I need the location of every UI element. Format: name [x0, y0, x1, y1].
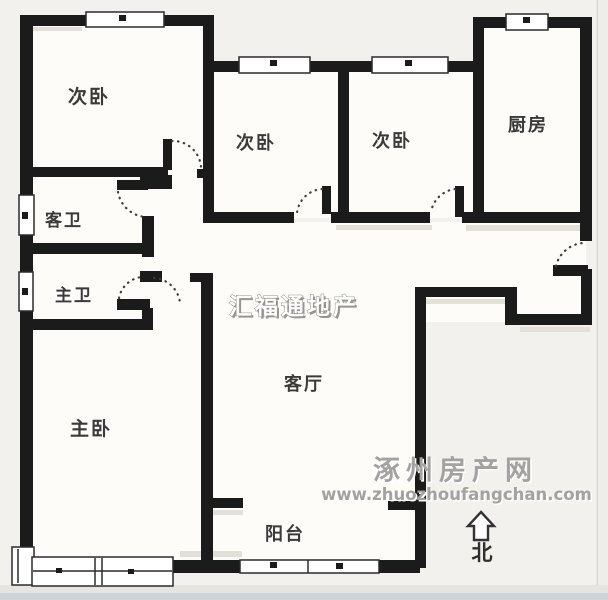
room-label-bedroom-right: 次卧 — [372, 130, 412, 152]
room-label-kitchen: 厨房 — [508, 114, 548, 136]
window-master-bottom — [32, 557, 173, 586]
floorplan-image: 次卧 次卧 次卧 厨房 客卫 主卫 主卧 客厅 阳台 汇福通地产 汇福通地产 涿… — [0, 0, 608, 600]
floorplan-svg: 次卧 次卧 次卧 厨房 客卫 主卫 主卧 客厅 阳台 汇福通地产 汇福通地产 涿… — [0, 0, 608, 600]
room-label-guest-bath: 客卫 — [44, 210, 83, 231]
window-bedroom2-top — [239, 57, 310, 73]
watermark-agency: 汇福通地产 — [229, 293, 359, 320]
room-label-bedroom-middle: 次卧 — [236, 132, 276, 154]
window-master-corner-box — [12, 547, 34, 585]
window-master-bath-left — [19, 272, 33, 311]
watermark-site: 涿州房产网 — [373, 456, 538, 487]
room-label-master-bed: 主卧 — [70, 418, 112, 440]
room-label-master-bath: 主卫 — [55, 285, 93, 306]
window-bedroom3-top — [372, 57, 448, 73]
north-label: 北 — [472, 541, 493, 565]
window-bedroom1-top — [86, 12, 164, 27]
window-guest-bath-left — [19, 195, 34, 235]
window-kitchen-top — [506, 14, 548, 30]
watermark-url: www.zhuozhoufangchan.com — [321, 485, 592, 504]
room-label-living-room: 客厅 — [284, 373, 324, 395]
room-label-bedroom-left: 次卧 — [68, 85, 110, 108]
room-label-balcony: 阳台 — [265, 523, 305, 545]
window-balcony-bottom — [240, 560, 379, 573]
